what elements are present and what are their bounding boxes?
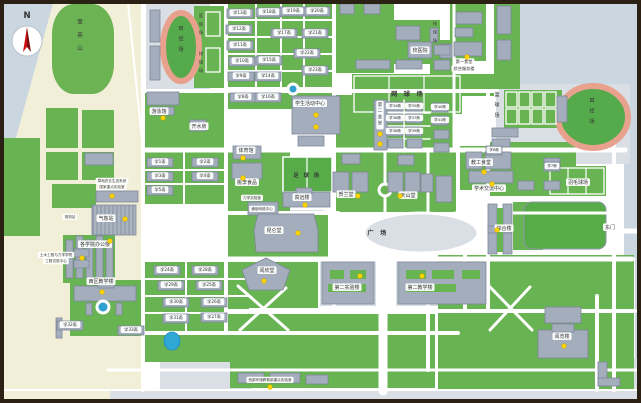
- building: [396, 60, 422, 69]
- building: [552, 324, 574, 332]
- poi-dot: [303, 203, 308, 208]
- map-label: 土木工程与力学学院: [40, 252, 73, 257]
- map-label: 场: [433, 37, 437, 44]
- map-label: 第: [378, 101, 383, 108]
- map-label: 桃李食品: [237, 179, 257, 186]
- courtyard: [462, 270, 480, 279]
- building: [356, 60, 390, 69]
- poi-dot: [110, 194, 115, 199]
- athletics-track: [558, 86, 628, 148]
- map-label: 学26斋: [207, 298, 222, 305]
- map-label: 学32斋: [63, 321, 78, 328]
- poi-dot: [80, 256, 85, 261]
- fountain: [290, 86, 297, 93]
- map-label: 学18斋: [262, 8, 277, 15]
- map-label: 学19斋: [286, 7, 301, 14]
- poi-dot: [358, 274, 363, 279]
- building: [298, 136, 324, 146]
- map-label: 堂: [378, 120, 383, 127]
- map-label: 山: [77, 44, 83, 52]
- map-label: 场: [494, 112, 499, 119]
- map-label: 学31斋: [169, 314, 184, 321]
- map-label: 学36斋: [389, 115, 401, 120]
- map-label: 学8斋: [237, 93, 249, 100]
- map-label: 场: [178, 46, 183, 53]
- building: [434, 143, 449, 152]
- campus-map-canvas: 学13斋学18斋学19斋学20斋学12斋学17斋学21斋学11斋学22斋学10斋…: [0, 0, 641, 403]
- map-label: 学35斋: [408, 103, 420, 108]
- map-label: 教工食堂: [471, 159, 491, 166]
- map-label: 羽毛球场: [568, 179, 588, 186]
- building: [434, 130, 449, 139]
- pond: [164, 332, 180, 350]
- map-label: 第二实验楼: [334, 284, 359, 291]
- map-label: 学9斋: [235, 72, 247, 79]
- building: [456, 12, 482, 24]
- building: [306, 375, 328, 384]
- building: [352, 172, 368, 192]
- map-label: 观测站: [65, 214, 76, 219]
- map-label: 学4斋: [199, 172, 211, 179]
- sports-field: [524, 202, 606, 249]
- building: [497, 6, 511, 34]
- map-label: 学5斋: [154, 186, 166, 193]
- map-label: 球: [494, 102, 499, 109]
- building: [405, 172, 420, 192]
- map-label: 西区教学楼: [88, 278, 113, 285]
- map-label: 场: [589, 118, 594, 125]
- poi-dot: [262, 279, 267, 284]
- map-label: 力学实验室: [243, 195, 261, 200]
- poi-dot: [161, 116, 166, 121]
- map-label: 第一食堂: [456, 58, 473, 65]
- map-label: 学29斋: [164, 281, 179, 288]
- map-label: 场: [199, 29, 203, 36]
- poi-dot: [482, 170, 487, 175]
- courtyard: [330, 270, 344, 279]
- map-label: 学11斋: [233, 41, 248, 48]
- map-label: 径: [178, 36, 183, 43]
- building: [333, 172, 349, 192]
- building: [342, 154, 360, 164]
- poi-dot: [398, 194, 403, 199]
- building: [398, 155, 414, 165]
- poi-dot: [420, 274, 425, 279]
- building: [557, 96, 567, 122]
- building: [545, 307, 581, 323]
- poi-dot: [241, 156, 246, 161]
- map-label: 学23斋: [308, 66, 323, 73]
- building: [598, 378, 620, 386]
- building: [116, 303, 122, 315]
- poi-dot: [241, 176, 246, 181]
- map-label: 学术交流中心: [474, 185, 504, 192]
- building: [434, 60, 450, 70]
- map-label: 昆仑堂: [266, 227, 281, 234]
- map-label: 学21斋: [308, 29, 323, 36]
- building: [340, 4, 354, 14]
- map-label: 学1斋: [154, 158, 166, 165]
- map-label: 学10斋: [235, 57, 250, 64]
- building: [74, 260, 89, 268]
- poi-dot: [378, 142, 383, 147]
- map-label: 游泳馆: [151, 108, 166, 115]
- building: [518, 181, 534, 190]
- map-label: 篮: [199, 12, 203, 18]
- building: [388, 172, 403, 192]
- map-label: 足 球 场: [293, 171, 320, 179]
- map-label: 英: [77, 31, 83, 39]
- map-label: 学13斋: [233, 9, 248, 16]
- poi-dot: [296, 231, 301, 236]
- map-label: 天山堂: [400, 192, 415, 199]
- map-label: 学14斋: [261, 72, 276, 79]
- building: [86, 303, 92, 315]
- map-label: 学6斋: [489, 147, 499, 152]
- poi-dot: [108, 239, 113, 244]
- map-label: 综合服务楼: [454, 65, 475, 72]
- map-label: 学24斋: [160, 266, 175, 273]
- lawn: [0, 138, 40, 236]
- building: [85, 153, 113, 165]
- building: [232, 163, 262, 179]
- map-label: 学生活动中心: [295, 100, 325, 107]
- building: [455, 28, 473, 37]
- building: [497, 40, 511, 60]
- fountain: [99, 303, 108, 312]
- map-label: 学30斋: [169, 298, 184, 305]
- map-label: 学28斋: [198, 266, 213, 273]
- map-label: 学27斋: [207, 313, 222, 320]
- map-label: 各学院办公楼: [80, 241, 110, 248]
- map-label: 学41斋: [434, 117, 446, 122]
- map-label: 广 场: [367, 229, 388, 237]
- poi-dot: [314, 125, 319, 130]
- map-label: 学16斋: [261, 93, 276, 100]
- map-label: 田: [178, 26, 183, 32]
- poi-dot: [378, 132, 383, 137]
- poi-dot: [490, 182, 495, 187]
- campus-map: 学13斋学18斋学19斋学20斋学12斋学17斋学21斋学11斋学22斋学10斋…: [0, 0, 641, 403]
- building: [434, 45, 450, 55]
- map-label: 学17斋: [277, 29, 292, 36]
- building: [398, 262, 486, 304]
- poi-dot: [123, 217, 128, 222]
- map-label: 径: [589, 108, 594, 115]
- building: [96, 191, 138, 202]
- map-label: 校医院: [412, 47, 427, 54]
- map-label: 西部环境教育部重点实验室: [248, 377, 292, 382]
- map-label: 篮: [494, 91, 499, 98]
- map-label: 学7斋: [547, 163, 557, 168]
- poi-dot: [356, 194, 361, 199]
- map-label: 网 球 场: [391, 90, 425, 98]
- building: [544, 181, 560, 190]
- map-label: 学15斋: [262, 56, 277, 63]
- map-label: 学33斋: [124, 326, 139, 333]
- map-label: 学12斋: [232, 25, 247, 32]
- map-label: 学37斋: [408, 115, 420, 120]
- building: [254, 214, 318, 252]
- map-label: 国家重点实验室: [99, 184, 125, 189]
- map-label: 学20斋: [310, 7, 325, 14]
- map-label: 草地农业生态系统: [98, 178, 127, 183]
- building: [454, 42, 482, 56]
- map-label: 高远楼: [294, 194, 309, 201]
- poi-dot: [268, 385, 273, 390]
- map-label: 田: [589, 98, 594, 104]
- map-label: 学2斋: [199, 158, 211, 165]
- map-label: 翠: [77, 19, 83, 26]
- map-label: 学25斋: [202, 281, 217, 288]
- building: [436, 176, 452, 202]
- map-label: 食: [378, 113, 383, 120]
- map-label: 阅览楼: [554, 333, 569, 340]
- poi-dot: [314, 113, 319, 118]
- compass-n-label: N: [23, 11, 30, 21]
- lawn: [82, 110, 114, 148]
- building: [421, 174, 433, 192]
- poi-dot: [495, 228, 500, 233]
- map-label: 学34斋: [389, 103, 401, 108]
- lawn: [46, 108, 78, 148]
- map-label: 二: [378, 108, 383, 114]
- lawn: [52, 184, 96, 208]
- building: [150, 46, 160, 80]
- poi-dot: [562, 344, 567, 349]
- building: [364, 4, 380, 14]
- lawn: [46, 152, 78, 180]
- building: [322, 262, 374, 304]
- poi-dot: [465, 55, 470, 60]
- map-label: 学40斋: [434, 104, 446, 109]
- poi-dot: [100, 290, 105, 295]
- map-label: 闻欣堂: [259, 267, 274, 274]
- map-label: 学22斋: [300, 49, 315, 56]
- building: [296, 188, 312, 194]
- map-label: 学38斋: [389, 128, 401, 133]
- map-label: 学39斋: [408, 128, 420, 133]
- building: [147, 92, 179, 105]
- building: [396, 26, 420, 40]
- map-label: 学3斋: [154, 172, 166, 179]
- map-label: 气象站: [98, 215, 113, 222]
- courtyard: [432, 270, 454, 279]
- map-label: 通信网络中心: [251, 206, 273, 211]
- map-label: 体育馆: [238, 147, 253, 154]
- map-label: 东门: [605, 224, 615, 231]
- building: [388, 139, 403, 148]
- building: [469, 171, 513, 183]
- map-label: 工程试验中心: [45, 258, 67, 263]
- map-label: 开水房: [191, 123, 206, 130]
- map-label: 贺兰堂: [338, 191, 353, 198]
- map-label: 第二教学楼: [407, 284, 432, 291]
- building: [492, 128, 518, 137]
- building: [150, 10, 160, 42]
- building: [407, 139, 422, 148]
- map-label: 场: [199, 67, 203, 74]
- hill-cuiyingshan: [52, 4, 114, 94]
